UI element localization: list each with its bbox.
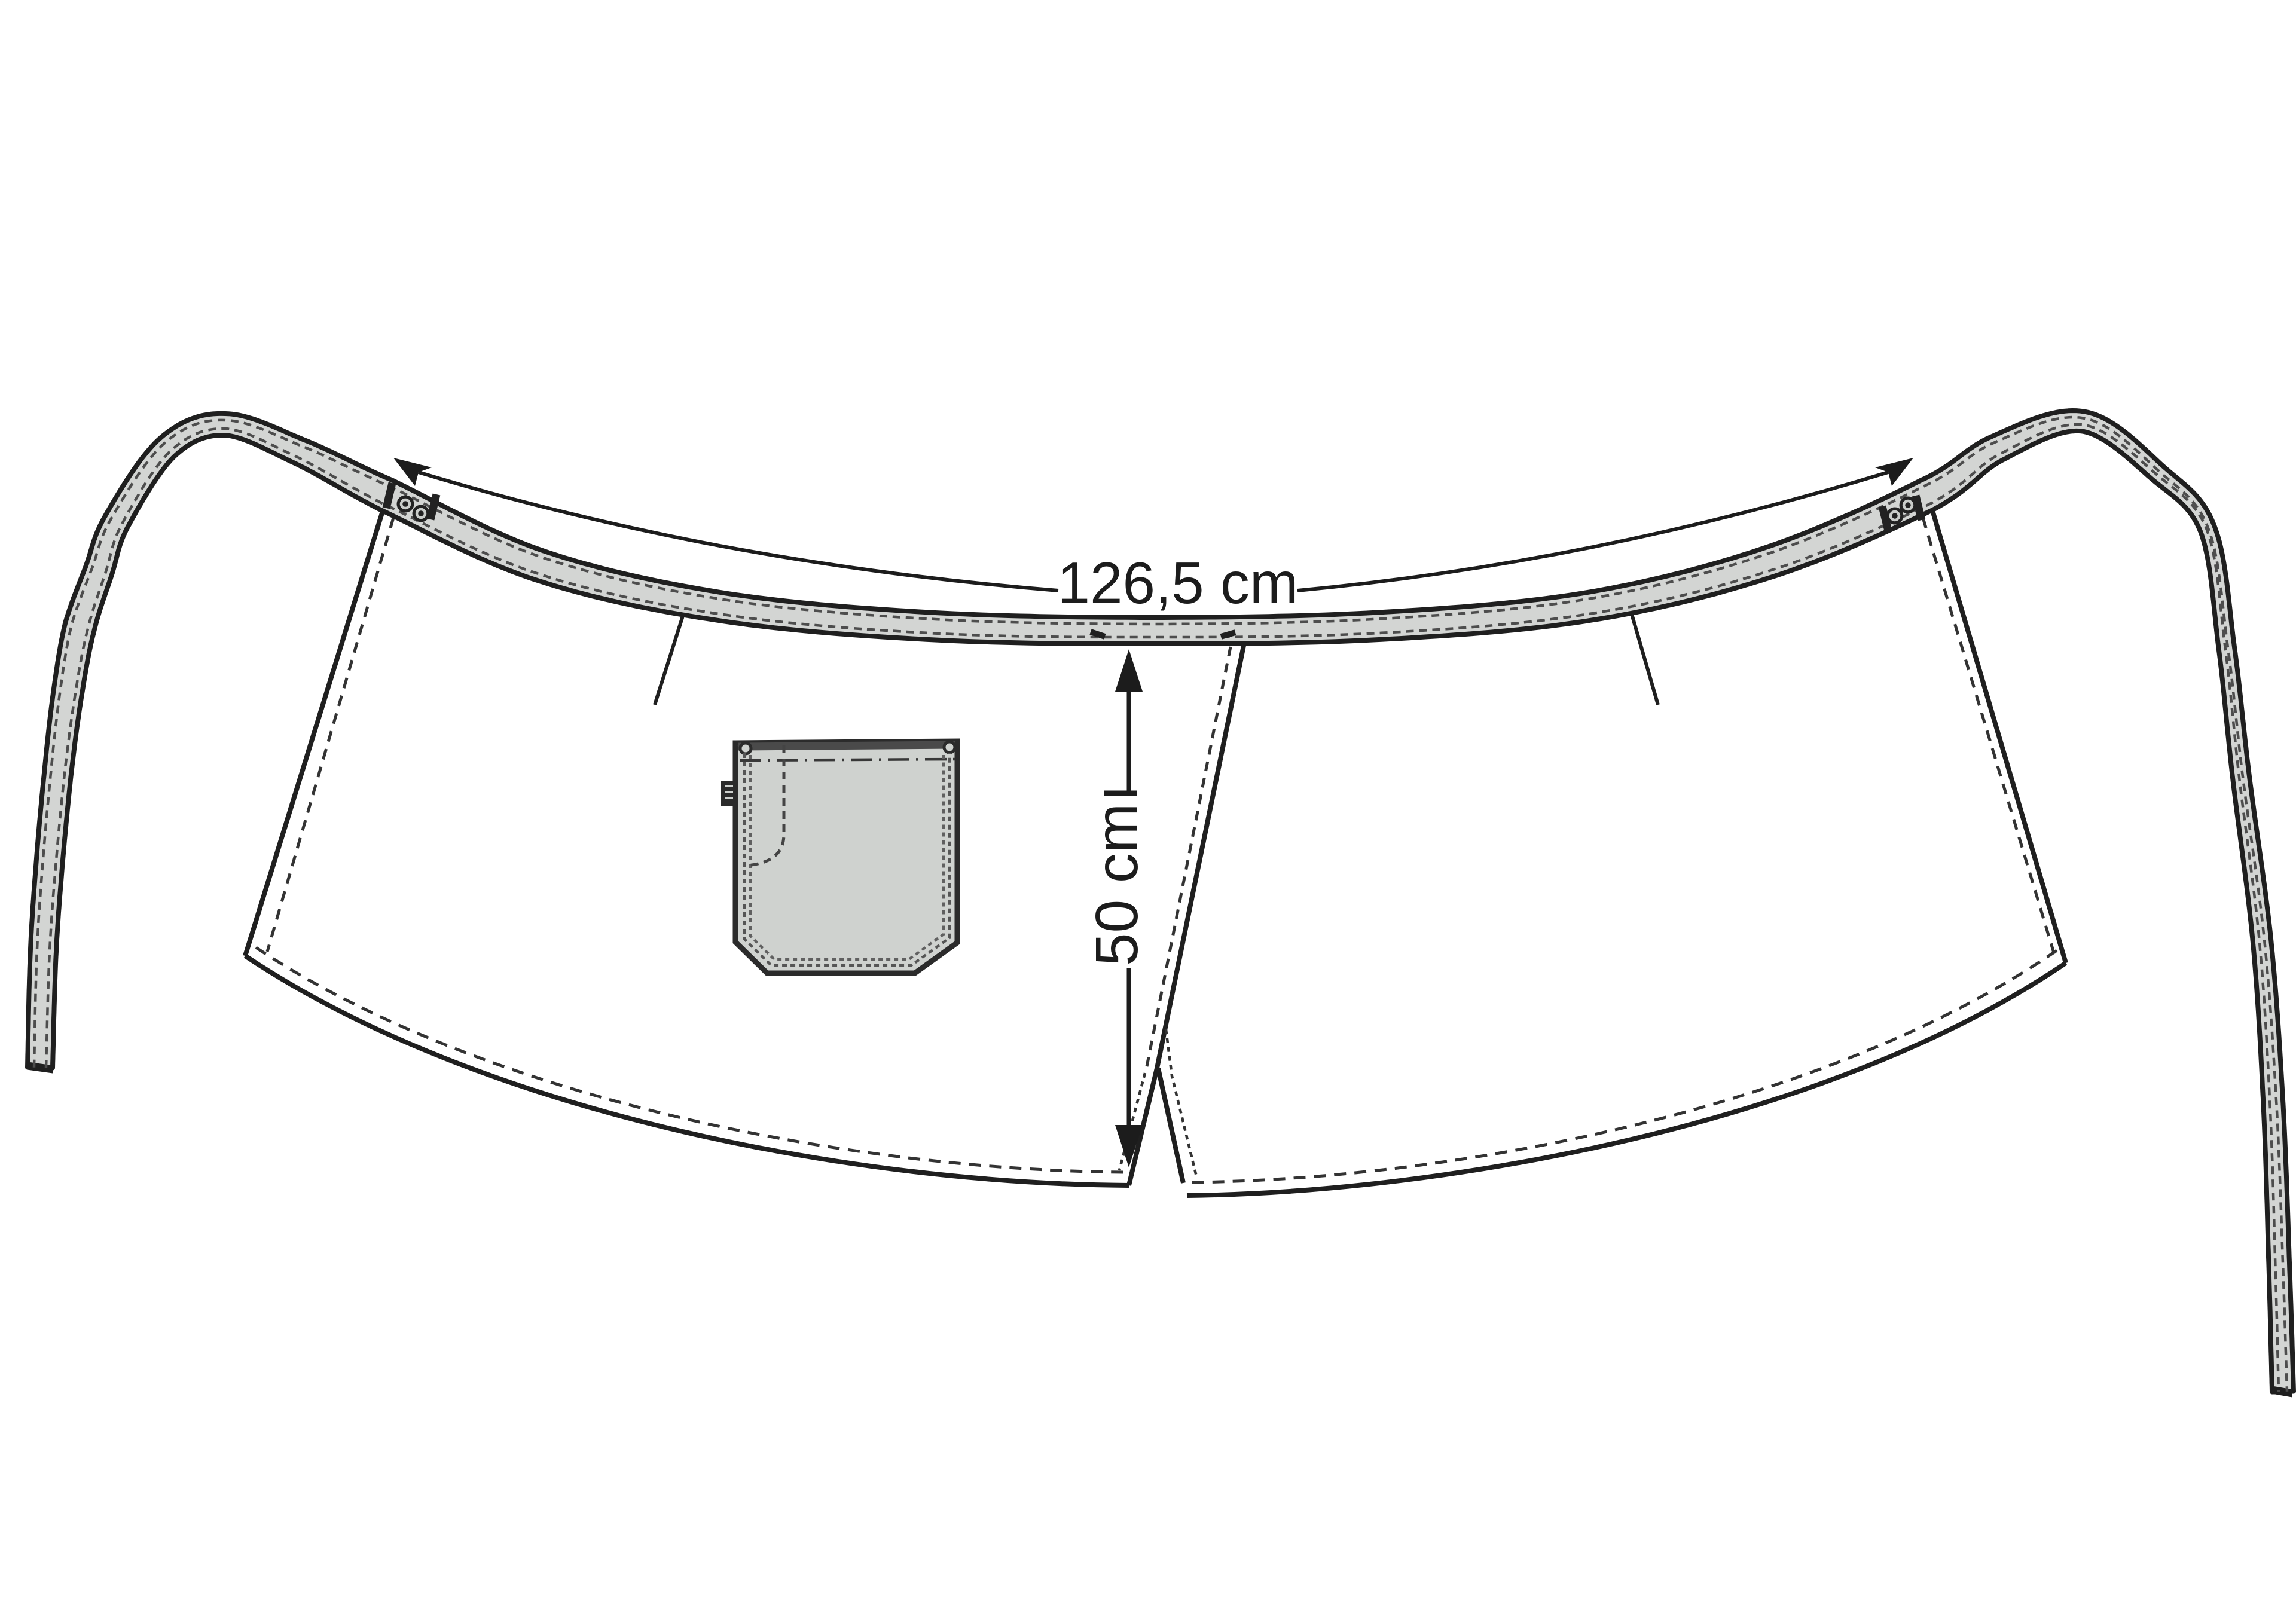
svg-text:126,5 cm: 126,5 cm xyxy=(1057,550,1298,616)
svg-text:50 cm: 50 cm xyxy=(1083,803,1150,966)
